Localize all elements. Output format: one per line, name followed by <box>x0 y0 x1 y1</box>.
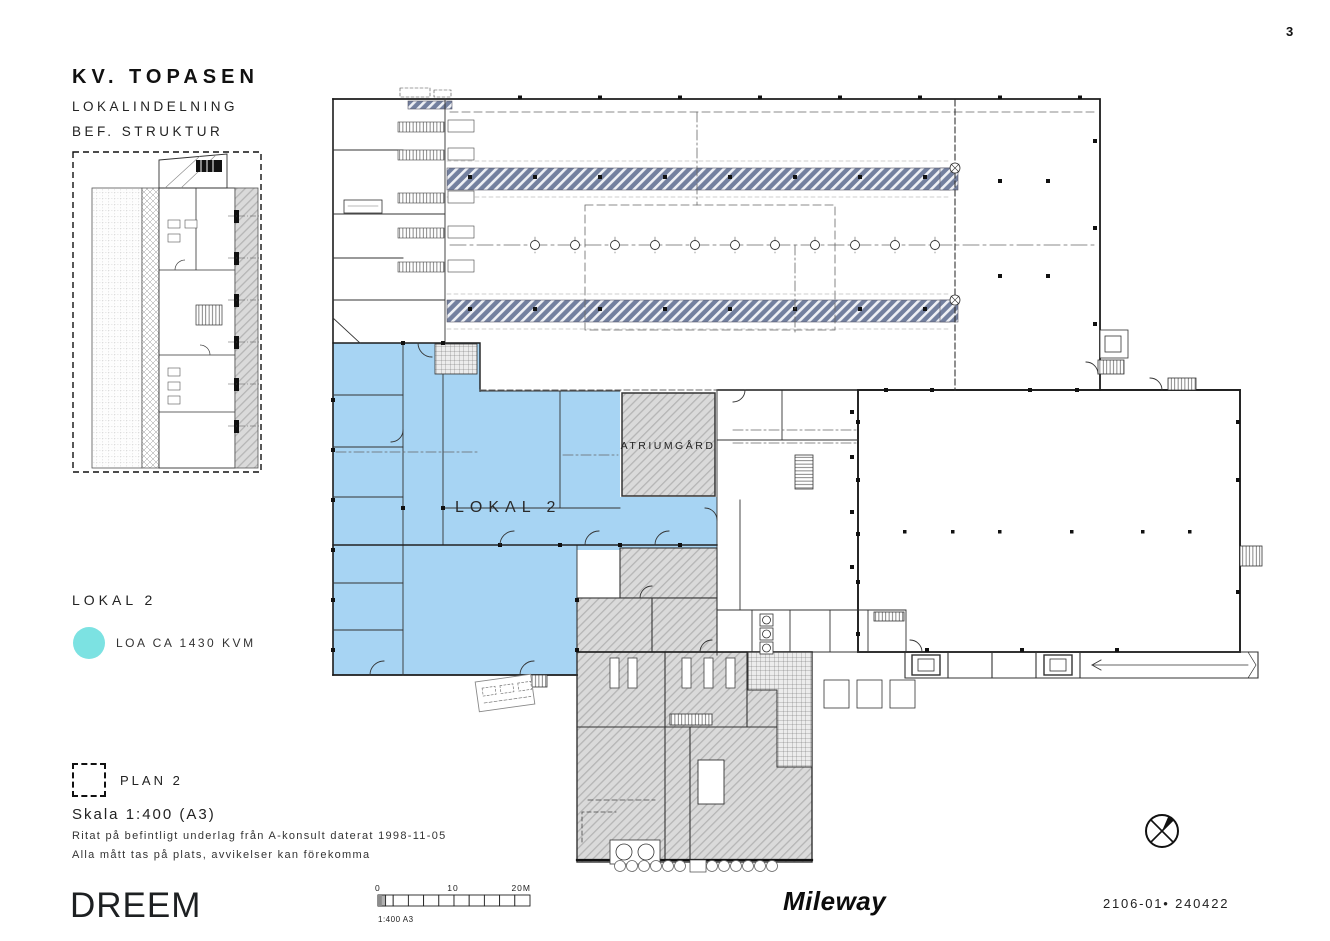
scale-info-block: Skala 1:400 (A3) Ritat på befintligt und… <box>72 806 447 861</box>
drawing-canvas: LOKAL 2 ATRIUMGÅRD 0 10 20M 1:400 A3 <box>0 0 1330 941</box>
subtitle-line-2: BEF. STRUKTUR <box>72 124 259 139</box>
plan-ref-dashed-box <box>72 763 106 797</box>
subtitle-line-1: LOKALINDELNING <box>72 99 259 114</box>
note-1: Ritat på befintligt underlag från A-kons… <box>72 830 447 842</box>
north-symbol <box>1146 815 1178 847</box>
loading-ramp <box>912 652 1256 678</box>
lokal2-color-dot <box>73 627 105 659</box>
equipment-box <box>475 674 535 712</box>
scale-tick-10: 10 <box>447 883 458 893</box>
scale-bar: 0 10 20M 1:400 A3 <box>375 883 531 924</box>
project-title: KV. TOPASEN <box>72 66 259 89</box>
scale-tick-20: 20M <box>511 883 531 893</box>
drawing-sheet: LOKAL 2 ATRIUMGÅRD 0 10 20M 1:400 A3 <box>0 0 1330 941</box>
document-number: 2106-01• 240422 <box>1103 896 1229 911</box>
overview-key-plan <box>73 152 261 472</box>
scale-tick-0: 0 <box>375 883 381 893</box>
floor-plan: LOKAL 2 ATRIUMGÅRD <box>331 88 1262 872</box>
atrium-label: ATRIUMGÅRD <box>621 439 716 452</box>
plan-ref-label: PLAN 2 <box>120 773 183 788</box>
loading-strips <box>408 101 958 322</box>
legend-area-text: LOA CA 1430 KVM <box>116 636 256 650</box>
scale-text: Skala 1:400 (A3) <box>72 806 447 823</box>
plan-reference: PLAN 2 <box>72 763 183 797</box>
mileway-logo: Mileway <box>783 886 886 917</box>
legend-heading: LOKAL 2 <box>72 592 156 608</box>
scale-caption: 1:400 A3 <box>378 915 414 924</box>
legend-row: LOA CA 1430 KVM <box>72 626 256 660</box>
lokal2-label: LOKAL 2 <box>455 499 561 516</box>
legend-swatch <box>72 626 106 660</box>
dreem-logo: DREEM <box>70 886 201 926</box>
note-2: Alla mått tas på plats, avvikelser kan f… <box>72 849 447 861</box>
title-block: KV. TOPASEN LOKALINDELNING BEF. STRUKTUR <box>72 66 259 139</box>
page-number: 3 <box>1286 24 1293 39</box>
